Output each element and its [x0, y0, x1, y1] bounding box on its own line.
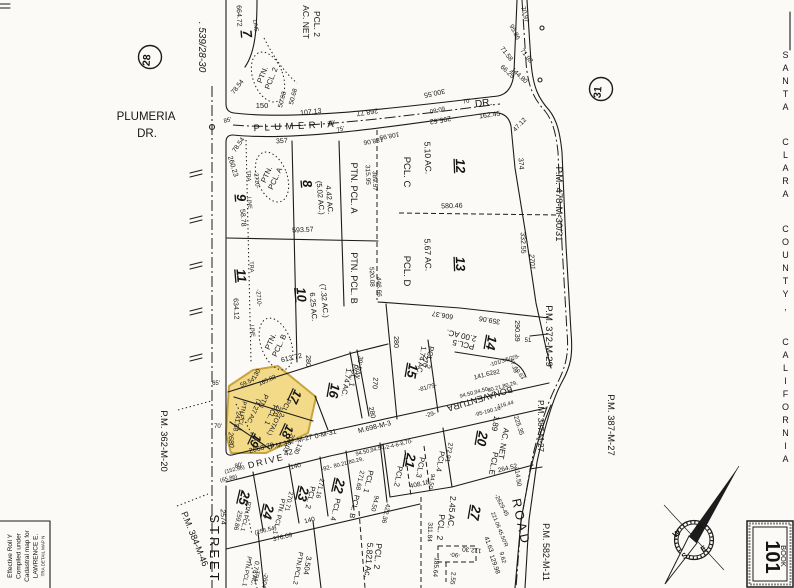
map-label: PCL. D: [401, 256, 412, 287]
map-label: 359.06: [478, 314, 500, 325]
map-label: 280: [304, 355, 311, 367]
map-label: 80.21,80.29,: [333, 456, 365, 469]
map-label: 374: [516, 158, 524, 170]
map-label: 116.44: [497, 400, 514, 410]
county-margin-text: SANTACLARACOUNTY,CALIFORNIA: [782, 50, 789, 464]
map-label: 664.72: [235, 5, 243, 27]
county-letter: A: [782, 102, 788, 112]
map-label: 290.39: [513, 320, 520, 342]
map-label: 606.37: [431, 309, 453, 320]
map-label: -90-: [449, 550, 460, 557]
map-label: 311.84: [426, 522, 434, 542]
map-label: 185.64: [431, 557, 440, 578]
map-labels: PLUMERIADR.PLUMERIADR.STREETROADBONAVENT…: [117, 5, 616, 588]
county-letter: F: [783, 389, 789, 399]
map-label: 78.54: [231, 136, 246, 154]
street-name: DR.: [137, 128, 157, 140]
map-label: -92-: [321, 465, 333, 473]
map-label: 41.63: [482, 536, 494, 554]
attribution-line: Effective Roll Y: [7, 533, 14, 578]
county-letter: Y: [782, 289, 788, 299]
map-label: 580.46: [441, 203, 463, 211]
map-label: 225.35: [512, 415, 525, 436]
map-label: PTN.PCL.2: [291, 551, 304, 585]
map-label: 51: [525, 338, 532, 344]
map-label: 5.67 AC.: [422, 238, 433, 271]
street-name: PLUMERIA: [253, 119, 338, 134]
parcel-number: 8: [300, 179, 316, 188]
map-label: 280: [392, 336, 399, 348]
attribution-line: Compiled under: [16, 532, 23, 579]
county-letter: L: [783, 363, 788, 373]
county-letter: O: [782, 237, 789, 247]
map-label: PCL. 2: [435, 514, 447, 541]
map-label: LINE: [245, 197, 252, 210]
map-label: 85': [223, 117, 232, 125]
map-label: 71.58: [498, 46, 514, 63]
map-label: 6.25 AC.: [308, 292, 319, 321]
county-letter: R: [782, 176, 789, 186]
parcel-number: 11: [233, 268, 249, 283]
map-label: 280: [367, 406, 376, 419]
map-label: 150: [256, 101, 269, 110]
map-label: 60-80: [428, 104, 445, 113]
map-label: 408.18: [409, 479, 430, 490]
assessor-attribution: Effective Roll YCompiled underCadastral …: [7, 529, 46, 581]
map-label: 112.30: [461, 545, 481, 554]
map-label: (7.32 AC.): [319, 284, 331, 319]
map-label: -2710-: [252, 171, 259, 189]
map-label: 593.57: [292, 226, 314, 234]
county-letter: A: [782, 454, 788, 464]
dashed-boundaries: [359, 130, 560, 588]
map-label: 295.62: [429, 114, 451, 125]
parcel-map-svg: PTN.PCL. 2PTN.PCL. APTN.PCL. B PLUMERIAD…: [0, 0, 794, 588]
street-name: DRIVE: [247, 452, 286, 471]
circled-sheet-numbers: 2831: [139, 46, 613, 101]
attribution-line: TRA DETAIL MAP N: [41, 536, 46, 577]
map-label: 634.12: [231, 298, 239, 320]
county-letter: A: [782, 63, 788, 73]
county-letter: A: [782, 163, 788, 173]
road-and-parcel-lines: [0, 0, 790, 588]
county-letter: L: [783, 150, 788, 160]
map-label: 2.45 AC.: [446, 496, 459, 529]
map-label: 5.821 Ac.: [362, 542, 375, 578]
map-label: TRA: [245, 170, 252, 182]
map-label: PTN. PCL. B: [349, 252, 359, 304]
map-label: 141.62: [473, 369, 494, 381]
compass-rose: N E S W: [664, 466, 739, 584]
map-label: 162.45: [479, 111, 501, 121]
pm-reference: P.M. 362-M-20: [158, 410, 169, 472]
map-label: 5.10 AC.: [422, 141, 433, 174]
map-label: -29-: [425, 411, 437, 420]
map-label: 300.55: [423, 87, 446, 98]
map-label: 357: [276, 138, 288, 146]
map-label: AC. NET: [496, 427, 510, 460]
county-letter: I: [784, 376, 787, 386]
parcel-number: 22: [330, 476, 348, 495]
survey-reference: . 539/28-30: [196, 22, 207, 73]
county-letter: C: [782, 224, 789, 234]
parcel-number: 14: [483, 334, 500, 352]
map-label: 75': [336, 126, 345, 134]
map-label: 82: [493, 369, 502, 377]
county-letter: N: [782, 428, 789, 438]
county-letter: O: [782, 402, 789, 412]
map-label: 94.50: [369, 495, 380, 513]
map-label: 270: [420, 355, 428, 367]
book-number: 101: [761, 540, 783, 573]
pm-reference: P.M. 478-M-30/31: [553, 167, 564, 242]
map-label: 70.97: [519, 6, 530, 24]
assessor-parcel-map: PTN.PCL. 2PTN.PCL. APTN.PCL. B PLUMERIAD…: [0, 0, 794, 588]
map-label: AC. NET: [301, 5, 311, 39]
map-label: 58.78: [238, 209, 247, 227]
map-label: 2701: [527, 253, 535, 270]
map-label: -2710-: [254, 289, 261, 307]
map-label: PCL. 4: [328, 497, 342, 521]
county-letter: C: [782, 337, 789, 347]
pm-reference: P.M. 387-M-27: [605, 394, 616, 456]
map-label: 47.12: [512, 116, 528, 133]
map-label: 188.06: [362, 135, 383, 145]
map-label: 1.89: [490, 415, 502, 432]
map-label: 65': [212, 381, 220, 387]
county-letter: U: [782, 250, 789, 260]
map-label: 94.50: [427, 473, 436, 489]
map-label: 332.55: [519, 232, 527, 254]
map-label: (256.54): [254, 525, 277, 536]
pm-reference: 0-M-31: [314, 428, 337, 440]
map-label: 107.13: [300, 108, 322, 117]
map-label: -2604-: [260, 572, 269, 588]
sheet-number: 28: [141, 54, 154, 67]
map-label: 1.74 AC.: [340, 367, 354, 397]
county-letter: R: [782, 415, 789, 425]
county-letter: S: [782, 50, 788, 60]
map-label: 140: [290, 462, 303, 472]
compass-letter-w: W: [671, 528, 683, 540]
pm-reference: P.M. 582-M-11: [541, 523, 551, 581]
map-label: 95.86: [508, 23, 522, 41]
map-label: 50.68: [277, 90, 288, 108]
map-label: 9.62: [498, 551, 507, 564]
county-letter: N: [782, 76, 789, 86]
map-label: 446.66: [375, 277, 383, 297]
map-label: PTN. PCL. A: [349, 162, 359, 213]
map-label: 10.63: [512, 366, 525, 381]
compass-needle: [689, 466, 739, 543]
map-label: TRA: [248, 261, 255, 273]
county-letter: N: [782, 263, 789, 273]
pm-reference: P.M. 384-M-46: [179, 510, 210, 568]
map-label: 422.36: [380, 503, 391, 524]
map-label: PCL. C: [401, 157, 412, 188]
map-label: 389.57: [371, 171, 379, 191]
attribution-line: Cadastral map for: [24, 529, 31, 581]
map-label: 78.54: [230, 78, 246, 95]
parcel-number: 20: [474, 429, 492, 448]
map-label: 2.00 AC.: [445, 328, 477, 344]
county-letter: C: [782, 137, 789, 147]
county-letter: T: [783, 89, 789, 99]
sheet-number: 31: [592, 86, 605, 99]
county-letter: I: [784, 441, 787, 451]
map-label: (65.86): [220, 474, 239, 484]
county-letter: ,: [784, 302, 787, 312]
county-letter: A: [782, 350, 788, 360]
parcel-number: 10: [293, 287, 309, 303]
parcel-number: 27: [467, 503, 485, 522]
attribution-line: LAWRENCE E.: [33, 534, 40, 579]
street-name: DR.: [474, 97, 493, 110]
map-label: 140: [304, 516, 317, 526]
map-label: 2.55: [448, 572, 456, 586]
book-badge: BOOK 101: [747, 521, 793, 587]
county-letter: T: [783, 276, 789, 286]
parcel-number: 12: [453, 158, 469, 174]
map-label: LINE: [248, 325, 255, 338]
map-label: PCL.2: [392, 465, 404, 487]
map-label: 2574: [219, 508, 227, 525]
map-label: 268.77: [356, 107, 378, 117]
map-label: PCL. 2: [312, 11, 322, 37]
map-label: 315.95: [364, 165, 372, 185]
parcel-number: 13: [453, 256, 469, 272]
map-label: 70': [214, 424, 222, 430]
pm-reference: P.M. 387-M-27: [536, 400, 545, 452]
map-label: 260.23: [226, 155, 239, 178]
map-label: 520.08: [368, 267, 376, 287]
map-label: 50.68: [288, 87, 299, 105]
map-label: 270: [370, 377, 378, 389]
map-label: 2680: [227, 431, 235, 448]
county-letter: A: [782, 189, 788, 199]
map-label: 70': [462, 98, 471, 105]
pm-reference: P.M. 372-M-29: [543, 305, 554, 367]
pm-reference: M.698-M-3: [357, 420, 392, 435]
street-name: PLUMERIA: [117, 111, 176, 123]
